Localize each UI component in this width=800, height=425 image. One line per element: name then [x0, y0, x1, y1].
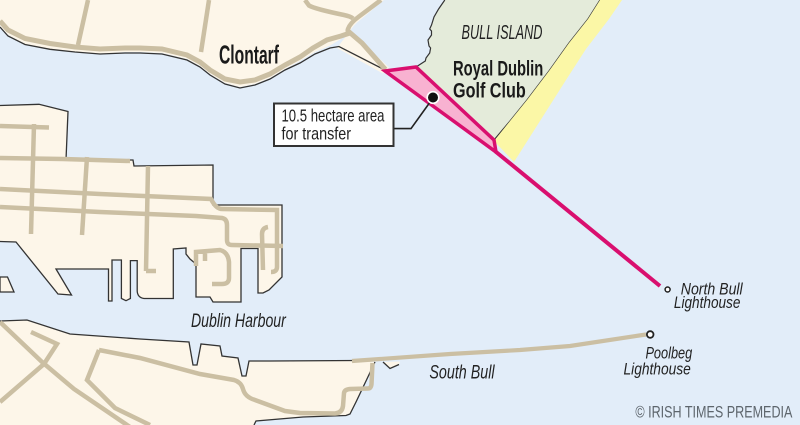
svg-text:Clontarf: Clontarf [219, 40, 280, 69]
svg-text:© IRISH TIMES PREMEDIA: © IRISH TIMES PREMEDIA [635, 403, 792, 422]
svg-text:Golf Club: Golf Club [453, 78, 526, 102]
svg-text:Royal Dublin: Royal Dublin [453, 57, 543, 80]
svg-text:for transfer: for transfer [282, 124, 352, 144]
svg-text:Lighthouse: Lighthouse [623, 360, 691, 379]
svg-text:Dublin Harbour: Dublin Harbour [191, 310, 287, 332]
svg-text:Lighthouse: Lighthouse [674, 294, 740, 313]
svg-text:South Bull: South Bull [429, 362, 495, 383]
svg-text:BULL ISLAND: BULL ISLAND [462, 21, 543, 44]
